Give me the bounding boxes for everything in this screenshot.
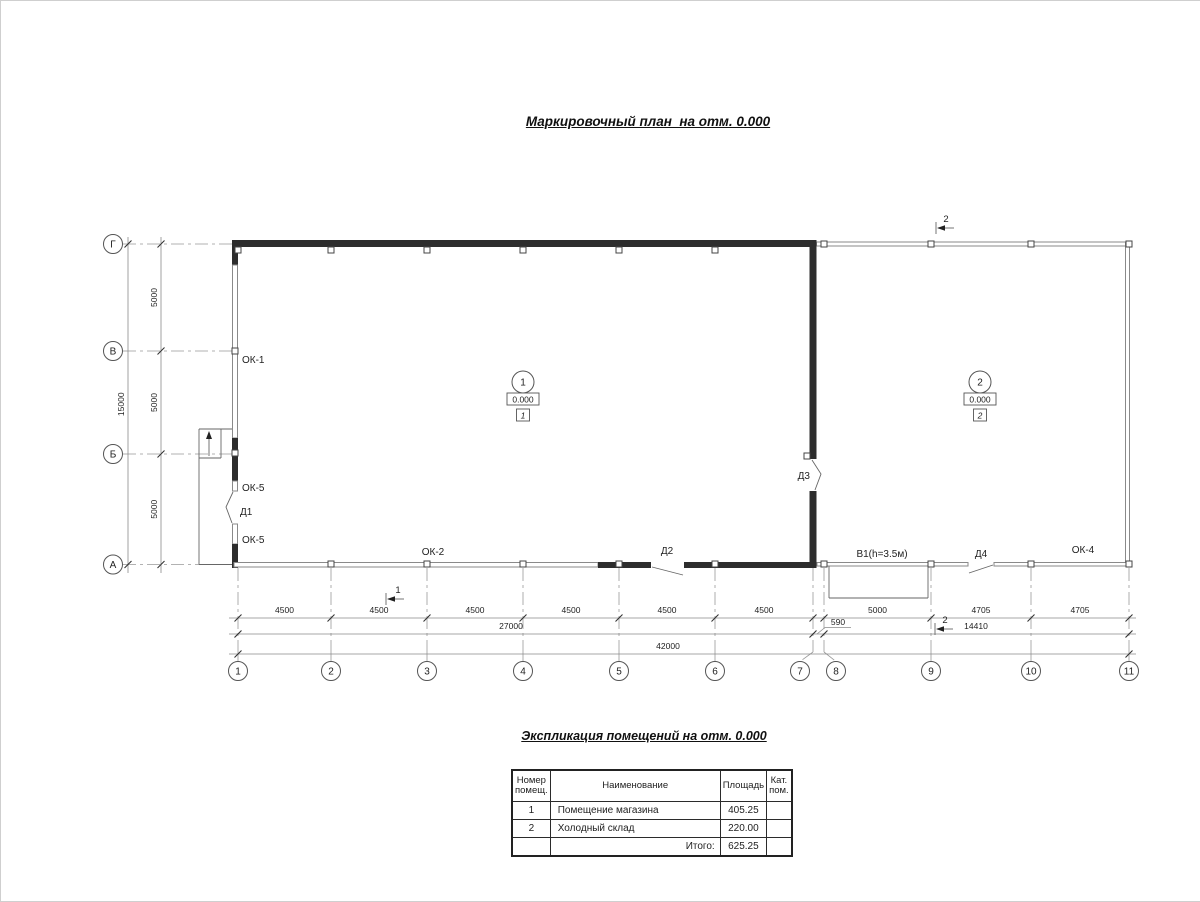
room-elevation: 0.000	[969, 395, 991, 405]
row-axis-label: В	[110, 347, 117, 358]
left-wall	[232, 438, 238, 481]
column-marker	[1028, 241, 1034, 247]
drawing-sheet: Маркировочный план на отм. 0.000 ГВБА123…	[0, 0, 1200, 902]
col-axis-label: 8	[833, 667, 839, 678]
room-tag: 1	[521, 411, 526, 421]
label-ok-4: ОК-4	[1072, 545, 1095, 556]
label-d4: Д4	[975, 549, 988, 560]
top-wall-store	[817, 242, 1130, 246]
dim-value: 4500	[275, 605, 294, 615]
label-v1-gate: В1(h=3.5м)	[856, 549, 907, 560]
window-ok2-band	[234, 563, 598, 568]
explication-table: Номер помещ.НаименованиеПлощадьКат. пом.…	[511, 769, 793, 857]
col-axis-label: 9	[928, 667, 934, 678]
floor-plan-drawing: ГВБА123456789101145004500450045004500450…	[1, 1, 1200, 723]
expl-cell-num	[512, 838, 550, 857]
column-marker	[928, 241, 934, 247]
column-marker	[232, 348, 238, 354]
column-marker	[804, 453, 810, 459]
expl-cell-num: 1	[512, 802, 550, 820]
door-d2	[652, 567, 683, 575]
section-arrowhead-icon	[937, 225, 945, 231]
col-axis-leader	[800, 652, 813, 662]
column-marker	[232, 450, 238, 456]
expl-total-label: Итого:	[550, 838, 720, 857]
dim-value: 4500	[562, 605, 581, 615]
room-number: 2	[977, 378, 983, 389]
expl-cell-area: 220.00	[720, 820, 766, 838]
row-axis-label: А	[110, 560, 117, 571]
col-axis-label: 5	[616, 667, 622, 678]
col-axis-label: 6	[712, 667, 718, 678]
expl-cell-num: 2	[512, 820, 550, 838]
column-marker	[520, 247, 526, 253]
column-marker	[1028, 561, 1034, 567]
expl-header-name: Наименование	[550, 770, 720, 802]
column-marker	[424, 247, 430, 253]
expl-cell-cat	[767, 802, 792, 820]
dim-value: 5000	[868, 605, 887, 615]
column-marker	[712, 247, 718, 253]
middle-wall	[810, 491, 817, 568]
row-axis-label: Б	[110, 450, 117, 461]
expl-header-area: Площадь	[720, 770, 766, 802]
col-axis-label: 1	[235, 667, 241, 678]
door-d4	[969, 565, 993, 573]
column-marker	[616, 247, 622, 253]
middle-wall	[810, 240, 817, 459]
ramp-arrowhead-icon	[206, 431, 212, 439]
explication-title: Экспликация помещений на отм. 0.000	[521, 729, 766, 743]
row-axis-label: Г	[110, 240, 116, 251]
column-marker	[928, 561, 934, 567]
expl-cell-name: Холодный склад	[550, 820, 720, 838]
room-elevation: 0.000	[512, 395, 534, 405]
bottom-wall	[684, 562, 817, 568]
column-marker	[328, 247, 334, 253]
bottom-wall	[598, 562, 651, 568]
label-d2: Д2	[661, 546, 674, 557]
col-axis-leader	[824, 652, 836, 662]
label-ok-2: ОК-2	[422, 547, 445, 558]
window-ok5	[233, 481, 238, 491]
dim-value: 42000	[656, 641, 680, 651]
column-marker	[328, 561, 334, 567]
right-wall	[1126, 242, 1130, 565]
room-number: 1	[520, 378, 526, 389]
label-d3: Д3	[798, 471, 811, 482]
column-marker	[616, 561, 622, 567]
dim-value: 27000	[499, 621, 523, 631]
dim-value: 4500	[658, 605, 677, 615]
dim-value: 4500	[755, 605, 774, 615]
column-marker	[712, 561, 718, 567]
dim-value: 5000	[149, 500, 159, 519]
window-ok4-band	[994, 563, 1129, 567]
dim-value: 4705	[1071, 605, 1090, 615]
section-arrowhead-icon	[387, 596, 395, 602]
label-d1: Д1	[240, 507, 253, 518]
expl-cell-cat	[767, 838, 792, 857]
door-d1	[226, 492, 233, 523]
expl-header-cat: Кат. пом.	[767, 770, 792, 802]
top-wall	[232, 240, 817, 247]
label-ok-1: ОК-1	[242, 355, 265, 366]
column-marker	[821, 561, 827, 567]
column-marker	[821, 241, 827, 247]
room-tag: 2	[977, 411, 983, 421]
column-marker	[1126, 241, 1132, 247]
label-ok-5-upper: ОК-5	[242, 483, 265, 494]
expl-total-value: 625.25	[720, 838, 766, 857]
col-axis-label: 2	[328, 667, 334, 678]
dim-value: 590	[831, 617, 845, 627]
column-marker	[520, 561, 526, 567]
col-axis-label: 3	[424, 667, 430, 678]
dim-value: 4500	[370, 605, 389, 615]
door-d3	[812, 460, 821, 490]
dim-value: 4705	[972, 605, 991, 615]
col-axis-label: 7	[797, 667, 803, 678]
expl-cell-area: 405.25	[720, 802, 766, 820]
window-ok5	[233, 524, 238, 544]
column-marker	[1126, 561, 1132, 567]
section-marker-label: 1	[395, 585, 400, 596]
dim-value: 5000	[149, 393, 159, 412]
col-axis-label: 10	[1025, 667, 1037, 678]
section-arrowhead-icon	[936, 626, 944, 632]
expl-cell-name: Помещение магазина	[550, 802, 720, 820]
dim-value: 5000	[149, 288, 159, 307]
column-marker	[424, 561, 430, 567]
column-marker	[235, 247, 241, 253]
col-axis-label: 4	[520, 667, 526, 678]
bottom-wall-store	[817, 563, 968, 567]
dim-value: 15000	[116, 392, 126, 416]
label-ok-5-lower: ОК-5	[242, 535, 265, 546]
dim-value: 4500	[466, 605, 485, 615]
dim-value: 14410	[964, 621, 988, 631]
section-marker-label: 2	[942, 615, 947, 626]
expl-cell-cat	[767, 820, 792, 838]
expl-header-num: Номер помещ.	[512, 770, 550, 802]
col-axis-label: 11	[1124, 667, 1135, 678]
section-marker-label: 2	[943, 214, 948, 225]
